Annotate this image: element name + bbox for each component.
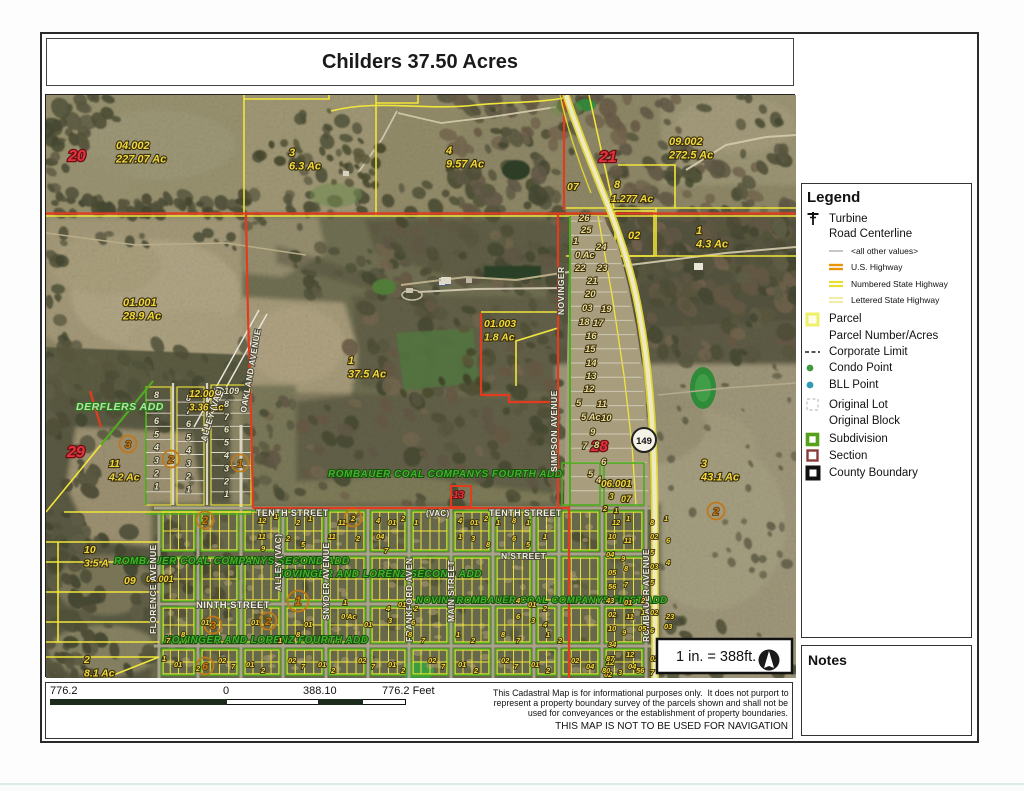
svg-text:13: 13 <box>453 490 465 501</box>
svg-text:2: 2 <box>260 666 266 675</box>
svg-text:11: 11 <box>597 399 607 410</box>
svg-text:2: 2 <box>400 666 406 675</box>
svg-text:11: 11 <box>109 458 120 470</box>
svg-text:(VAC): (VAC) <box>426 509 450 518</box>
svg-text:1: 1 <box>224 489 229 499</box>
svg-text:1: 1 <box>274 512 278 521</box>
svg-text:8.1 Ac: 8.1 Ac <box>84 668 115 679</box>
svg-text:02: 02 <box>288 656 297 665</box>
svg-text:10: 10 <box>608 624 617 633</box>
svg-text:3: 3 <box>125 439 131 451</box>
svg-text:4: 4 <box>185 445 191 455</box>
svg-text:1: 1 <box>162 654 166 663</box>
svg-text:2: 2 <box>185 472 191 482</box>
svg-text:0 Ac: 0 Ac <box>341 612 357 621</box>
svg-text:03: 03 <box>650 562 659 571</box>
svg-text:15: 15 <box>585 344 596 355</box>
svg-text:1: 1 <box>348 355 354 367</box>
svg-text:02: 02 <box>571 656 580 665</box>
svg-text:SIMPSON AVENUE: SIMPSON AVENUE <box>549 390 559 472</box>
svg-text:01: 01 <box>388 660 396 669</box>
svg-text:1: 1 <box>614 506 618 515</box>
svg-text:227.07 Ac: 227.07 Ac <box>115 154 166 166</box>
svg-text:MAIN STREET: MAIN STREET <box>446 560 456 622</box>
svg-text:02: 02 <box>628 230 640 242</box>
svg-text:2: 2 <box>264 616 271 628</box>
svg-text:21: 21 <box>598 149 617 166</box>
svg-text:NINTH STREET: NINTH STREET <box>196 600 270 611</box>
svg-text:24: 24 <box>595 242 607 253</box>
svg-text:07: 07 <box>621 494 632 504</box>
svg-text:TENTH STREET: TENTH STREET <box>489 508 562 518</box>
svg-text:8: 8 <box>224 399 229 409</box>
svg-text:1: 1 <box>573 236 578 247</box>
svg-text:3: 3 <box>224 463 229 473</box>
svg-text:04: 04 <box>606 550 615 559</box>
svg-text:07: 07 <box>567 181 580 193</box>
svg-text:1: 1 <box>343 598 347 607</box>
svg-text:1: 1 <box>294 594 301 609</box>
svg-text:3: 3 <box>609 491 614 501</box>
svg-text:19: 19 <box>601 304 612 315</box>
svg-text:SNYDER AVENUE: SNYDER AVENUE <box>321 543 331 620</box>
svg-text:20: 20 <box>67 148 86 165</box>
svg-text:1: 1 <box>626 514 630 523</box>
svg-text:2: 2 <box>295 518 301 527</box>
svg-text:10: 10 <box>608 532 617 541</box>
svg-text:5: 5 <box>588 469 594 480</box>
svg-text:02: 02 <box>650 608 659 617</box>
svg-text:2: 2 <box>483 514 489 523</box>
svg-text:16: 16 <box>586 331 597 342</box>
svg-text:01: 01 <box>458 660 466 669</box>
svg-text:2: 2 <box>223 476 229 486</box>
svg-text:05: 05 <box>608 568 617 577</box>
svg-text:14: 14 <box>586 358 597 369</box>
svg-text:11: 11 <box>328 532 336 541</box>
svg-text:0 Ac: 0 Ac <box>575 250 595 261</box>
svg-text:4: 4 <box>223 451 229 461</box>
svg-text:37.5 Ac: 37.5 Ac <box>348 369 386 381</box>
svg-text:01: 01 <box>388 518 396 527</box>
svg-text:09: 09 <box>124 575 136 587</box>
svg-text:04: 04 <box>586 662 595 671</box>
svg-text:1: 1 <box>278 636 282 645</box>
svg-text:2: 2 <box>545 666 551 675</box>
svg-text:26: 26 <box>578 213 590 224</box>
svg-text:25: 25 <box>580 225 592 236</box>
svg-text:2: 2 <box>400 514 406 523</box>
svg-text:ROMBAUER COAL COMPANYS FOURTH: ROMBAUER COAL COMPANYS FOURTH ADD <box>328 469 562 480</box>
svg-text:02: 02 <box>501 656 510 665</box>
svg-text:3: 3 <box>186 459 191 469</box>
svg-text:8: 8 <box>594 440 600 451</box>
svg-text:10: 10 <box>84 544 96 556</box>
svg-text:5 Ac: 5 Ac <box>581 412 601 423</box>
svg-text:1: 1 <box>414 518 418 527</box>
svg-text:1.8 Ac: 1.8 Ac <box>484 332 515 344</box>
svg-text:2: 2 <box>413 604 419 613</box>
svg-text:09.002: 09.002 <box>669 136 703 148</box>
svg-text:01: 01 <box>246 660 254 669</box>
svg-text:4: 4 <box>153 442 159 452</box>
svg-text:23: 23 <box>596 263 608 274</box>
svg-text:06.001: 06.001 <box>601 479 632 490</box>
svg-text:11: 11 <box>624 536 632 545</box>
svg-text:2: 2 <box>201 515 208 527</box>
svg-text:4.2 Ac: 4.2 Ac <box>108 472 140 484</box>
svg-text:11: 11 <box>258 532 266 541</box>
svg-text:6: 6 <box>601 457 607 468</box>
svg-text:2: 2 <box>153 469 159 479</box>
svg-text:1: 1 <box>543 532 547 541</box>
svg-text:4: 4 <box>445 145 452 157</box>
svg-text:4: 4 <box>542 620 548 629</box>
svg-text:2: 2 <box>557 636 563 645</box>
svg-text:3: 3 <box>154 456 159 466</box>
svg-text:01: 01 <box>304 620 312 629</box>
svg-text:20: 20 <box>584 289 596 300</box>
svg-text:1: 1 <box>641 608 645 617</box>
svg-text:01: 01 <box>398 600 406 609</box>
svg-text:NOVINGER: NOVINGER <box>556 266 566 315</box>
svg-text:18: 18 <box>579 317 590 328</box>
svg-text:56: 56 <box>608 582 617 591</box>
svg-text:2: 2 <box>640 596 646 605</box>
svg-text:01: 01 <box>528 600 536 609</box>
svg-text:2: 2 <box>473 666 479 675</box>
svg-text:28.9 Ac: 28.9 Ac <box>122 311 161 323</box>
svg-text:2: 2 <box>470 636 476 645</box>
svg-text:01: 01 <box>201 618 209 627</box>
svg-text:02: 02 <box>358 656 367 665</box>
svg-text:12: 12 <box>612 518 621 527</box>
svg-text:29: 29 <box>66 444 85 461</box>
svg-text:149: 149 <box>636 436 652 447</box>
svg-text:11: 11 <box>626 612 634 621</box>
svg-text:80: 80 <box>602 666 611 675</box>
svg-text:43: 43 <box>605 596 615 605</box>
svg-text:2: 2 <box>602 504 608 513</box>
svg-text:3: 3 <box>210 620 216 632</box>
svg-text:01: 01 <box>364 620 372 629</box>
svg-text:4: 4 <box>595 475 602 486</box>
svg-text:6.3 Ac: 6.3 Ac <box>289 161 321 173</box>
svg-text:43.1 Ac: 43.1 Ac <box>700 472 739 484</box>
svg-text:FLORENCE AVENUE: FLORENCE AVENUE <box>148 544 158 634</box>
svg-text:02: 02 <box>650 532 659 541</box>
svg-text:7: 7 <box>582 441 588 452</box>
svg-text:01.003: 01.003 <box>484 318 516 330</box>
svg-text:01: 01 <box>470 518 478 527</box>
svg-text:2: 2 <box>330 666 336 675</box>
svg-text:87: 87 <box>606 654 615 663</box>
svg-text:6: 6 <box>202 661 209 673</box>
svg-text:12: 12 <box>626 650 635 659</box>
svg-text:1: 1 <box>154 482 159 492</box>
svg-text:01: 01 <box>531 660 539 669</box>
svg-text:01: 01 <box>174 660 182 669</box>
svg-text:3: 3 <box>701 458 707 470</box>
svg-text:3.5 A: 3.5 A <box>84 558 109 570</box>
svg-text:04.002: 04.002 <box>116 140 150 152</box>
svg-text:02: 02 <box>608 610 617 619</box>
svg-text:12: 12 <box>258 516 267 525</box>
svg-text:05: 05 <box>638 624 647 633</box>
svg-text:2: 2 <box>83 654 90 666</box>
svg-text:2: 2 <box>712 506 719 518</box>
svg-text:8: 8 <box>154 390 159 400</box>
svg-text:4: 4 <box>515 596 521 605</box>
svg-text:2: 2 <box>355 534 361 543</box>
svg-text:5: 5 <box>576 398 582 409</box>
svg-text:17: 17 <box>593 318 604 329</box>
svg-text:8: 8 <box>614 179 621 191</box>
svg-text:1: 1 <box>696 225 702 237</box>
svg-text:1: 1 <box>458 532 462 541</box>
svg-text:4: 4 <box>665 558 671 567</box>
svg-text:02: 02 <box>428 656 437 665</box>
svg-text:11: 11 <box>338 518 346 527</box>
svg-text:22: 22 <box>574 263 586 274</box>
svg-text:2: 2 <box>285 534 291 543</box>
svg-text:1 in. = 388ft.: 1 in. = 388ft. <box>676 649 756 665</box>
svg-text:4: 4 <box>375 516 381 525</box>
svg-text:01: 01 <box>251 618 259 627</box>
svg-text:N STREET: N STREET <box>501 551 547 561</box>
svg-text:3: 3 <box>289 147 295 159</box>
svg-text:109: 109 <box>224 386 239 396</box>
svg-text:2: 2 <box>167 454 174 466</box>
svg-text:04: 04 <box>376 532 385 541</box>
svg-text:DERFLERS ADD: DERFLERS ADD <box>76 401 164 413</box>
svg-text:21: 21 <box>586 276 598 287</box>
svg-text:13: 13 <box>586 371 597 382</box>
svg-text:1: 1 <box>546 630 550 639</box>
svg-text:01.001: 01.001 <box>123 297 157 309</box>
svg-text:23: 23 <box>665 612 675 621</box>
svg-text:1: 1 <box>526 518 530 527</box>
svg-text:1: 1 <box>237 458 243 470</box>
svg-text:2: 2 <box>195 664 201 673</box>
svg-text:NOVINGER AND LORENZ FOURTH ADD: NOVINGER AND LORENZ FOURTH ADD <box>164 635 369 646</box>
svg-text:34: 34 <box>608 640 617 649</box>
svg-text:2: 2 <box>542 604 548 613</box>
svg-text:1.277 Ac: 1.277 Ac <box>611 193 653 205</box>
svg-text:272.5 Ac: 272.5 Ac <box>668 150 713 162</box>
svg-text:03: 03 <box>664 622 673 631</box>
svg-text:03: 03 <box>582 303 593 314</box>
svg-text:1: 1 <box>496 518 500 527</box>
svg-text:1: 1 <box>186 485 191 495</box>
svg-text:1: 1 <box>308 514 312 523</box>
svg-text:4: 4 <box>385 604 391 613</box>
svg-text:02: 02 <box>218 656 227 665</box>
svg-text:1: 1 <box>456 630 460 639</box>
svg-text:TENTH STREET: TENTH STREET <box>256 508 329 518</box>
svg-text:4: 4 <box>457 516 463 525</box>
svg-text:9.57 Ac: 9.57 Ac <box>446 159 484 171</box>
svg-text:1: 1 <box>664 514 668 523</box>
svg-text:01: 01 <box>624 598 632 607</box>
svg-text:ALLEY (VAC): ALLEY (VAC) <box>273 534 283 591</box>
svg-text:2: 2 <box>350 514 356 523</box>
svg-text:56: 56 <box>636 666 645 675</box>
svg-text:12: 12 <box>584 384 595 395</box>
svg-text:10: 10 <box>601 413 612 424</box>
svg-text:01: 01 <box>318 660 326 669</box>
svg-text:4.3 Ac: 4.3 Ac <box>695 239 728 251</box>
svg-text:9: 9 <box>590 427 596 438</box>
